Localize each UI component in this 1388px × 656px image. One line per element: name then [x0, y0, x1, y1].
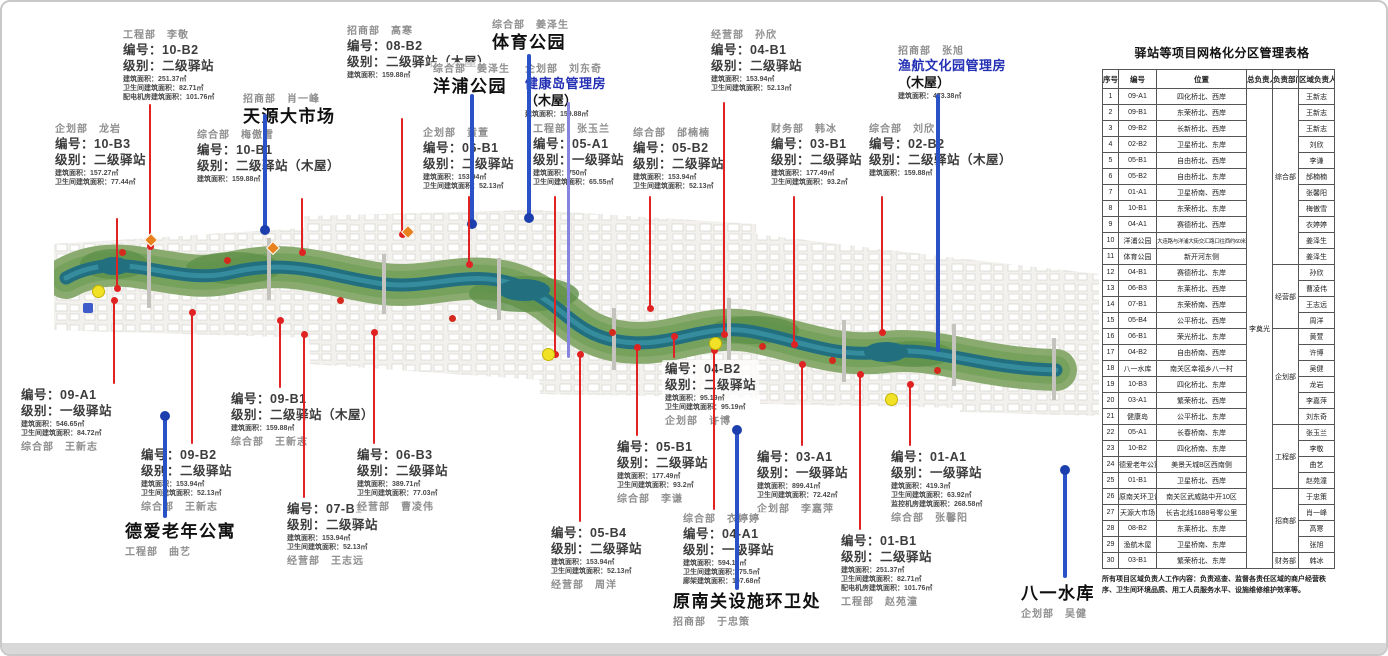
- cell-no: 16: [1103, 329, 1119, 345]
- callout-metric: 建筑面积：157.27㎡: [55, 169, 146, 178]
- callout-place-title: 洋浦公园: [433, 76, 510, 98]
- cell-location: 自由桥北、东岸: [1157, 169, 1247, 185]
- place-suffix: （木屋）: [525, 93, 606, 110]
- callout-owner: 工程部 赵苑潼: [841, 596, 932, 609]
- cell-code: 07-B1: [1119, 297, 1157, 313]
- table-row: 402-B2卫星桥北、东岸刘欣: [1103, 137, 1335, 153]
- cell-code: 八一水库: [1119, 361, 1157, 377]
- table-title: 驿站等项目网格化分区管理表格: [1102, 44, 1342, 61]
- callout-owner: 工程部 李敬: [123, 29, 214, 42]
- callout-code: 编号：06-B1: [423, 140, 514, 156]
- table-row: 1204-B1赛德桥北、东岸经营部孙欣: [1103, 265, 1335, 281]
- callout-owner: 工程部 曲艺: [125, 546, 236, 559]
- callout-metric: 配电机房建筑面积：101.76㎡: [841, 584, 932, 593]
- cell-location: 自由桥南、西岸: [1157, 345, 1247, 361]
- cell-location: 美景天城B区西南侧: [1157, 457, 1247, 473]
- cell-code: 天源大市场: [1119, 505, 1157, 521]
- cell-location: 繁荣桥北、东岸: [1157, 553, 1247, 569]
- table-row: 605-B2自由桥北、东岸邰楠楠: [1103, 169, 1335, 185]
- bottom-strip: [2, 643, 1386, 654]
- table-row: 2501-B1卫星桥北、西岸赵苑潼: [1103, 473, 1335, 489]
- cell-department: 企划部: [1273, 329, 1299, 425]
- table-footnote: 所有项目区域负责人工作内容：负责巡查、监督各责任区域的商户经营秩序、卫生间环境品…: [1102, 574, 1338, 596]
- place-name: 健康岛管理房: [525, 76, 606, 93]
- cell-no: 11: [1103, 249, 1119, 265]
- cell-code: 渔航木屋: [1119, 537, 1157, 553]
- cell-person: 刘欣: [1299, 137, 1335, 153]
- callout-metric: 配电机房建筑面积：101.76㎡: [123, 93, 214, 102]
- callout-code: 编号：10-B1: [197, 142, 340, 158]
- callout-metric: 卫生间建筑面积：52.13㎡: [711, 84, 802, 93]
- cell-no: 5: [1103, 153, 1119, 169]
- column-header: 总负责人: [1247, 70, 1273, 89]
- cell-person: 肖一峰: [1299, 505, 1335, 521]
- callout-10-B2: 工程部 李敬编号：10-B2级别：二级驿站建筑面积：251.37㎡卫生间建筑面积…: [120, 28, 217, 103]
- callout-place-title: 体育公园: [492, 32, 569, 54]
- callout-level: 级别：二级驿站: [711, 58, 802, 74]
- column-header: 序号: [1103, 70, 1119, 89]
- callout-owner: 财务部 韩冰: [771, 123, 862, 136]
- cell-location: 南关区幸福乡八一村: [1157, 361, 1247, 377]
- cell-code: 06-B1: [1119, 329, 1157, 345]
- callout-level: 级别：一级驿站: [533, 152, 624, 168]
- callout-metric: 卫生间建筑面积：77.44㎡: [55, 178, 146, 187]
- callout-metric: 监控机房建筑面积：268.58㎡: [891, 500, 982, 509]
- cell-no: 29: [1103, 537, 1119, 553]
- callout-metric: 建筑面积：594.16㎡: [683, 559, 774, 568]
- callout-metric: 卫生间建筑面积：82.71㎡: [123, 84, 214, 93]
- callout-metric: 廊架建筑面积：107.68㎡: [683, 577, 774, 586]
- table-row: 27天源大市场长吉北线1688号零公里肖一峰: [1103, 505, 1335, 521]
- cell-person: 龙岩: [1299, 377, 1335, 393]
- callout-01-B1: 编号：01-B1级别：二级驿站建筑面积：251.37㎡卫生间建筑面积：82.71…: [838, 532, 935, 610]
- table-row: 2808-B2东莱桥北、东岸高寒: [1103, 521, 1335, 537]
- callout-level: 级别：二级驿站: [771, 152, 862, 168]
- callout-code: 编号：10-B3: [55, 136, 146, 152]
- callout-metric: 建筑面积：251.37㎡: [123, 75, 214, 84]
- management-table-panel: 驿站等项目网格化分区管理表格 序号编号位置总负责人负责部门区域负责人 109-A…: [1102, 44, 1342, 596]
- callout-metric: 建筑面积：899.41㎡: [757, 482, 848, 491]
- callout-owner: 经营部 王志远: [287, 555, 378, 568]
- callout-code: 编号：03-A1: [757, 449, 848, 465]
- callout-jiankang: 企划部 刘东奇健康岛管理房（木屋）建筑面积：159.88㎡: [522, 62, 609, 120]
- cell-person: 赵苑潼: [1299, 473, 1335, 489]
- callout-metric: 卫生间建筑面积：93.2㎡: [617, 481, 708, 490]
- callout-04-A1: 综合部 衣婷婷编号：04-A1级别：一级驿站建筑面积：594.16㎡卫生间建筑面…: [680, 512, 777, 587]
- callout-place-title: 健康岛管理房（木屋）: [525, 76, 606, 110]
- callout-owner: 经营部 周洋: [551, 579, 642, 592]
- callout-metric: 卫生间建筑面积：77.03㎡: [357, 489, 448, 498]
- leader-line-blue: [1063, 470, 1067, 578]
- cell-location: 东莱桥北、东岸: [1157, 521, 1247, 537]
- callout-place-title: 德爱老年公寓: [125, 521, 236, 543]
- callout-metric: 卫生间建筑面积：52.13㎡: [141, 489, 232, 498]
- line-endpoint-dot: [1060, 465, 1070, 475]
- cell-code: 01-A1: [1119, 185, 1157, 201]
- place-name: 渔航文化园管理房: [898, 58, 1006, 75]
- cell-location: 卫星桥南、西岸: [1157, 185, 1247, 201]
- cell-code: 05-B4: [1119, 313, 1157, 329]
- callout-code: 编号：07-B1: [287, 501, 378, 517]
- cell-person: 李敬: [1299, 441, 1335, 457]
- callout-metric: 卫生间建筑面积：52.13㎡: [423, 182, 514, 191]
- callout-owner: 综合部 邰楠楠: [633, 127, 724, 140]
- callout-owner: 经营部 孙欣: [711, 29, 802, 42]
- cell-no: 21: [1103, 409, 1119, 425]
- cell-person: 张馨阳: [1299, 185, 1335, 201]
- cell-code: 04-B2: [1119, 345, 1157, 361]
- cell-location: 东荣桥北、西岸: [1157, 105, 1247, 121]
- callout-code: 编号：05-A1: [533, 136, 624, 152]
- callout-deai: 德爱老年公寓工程部 曲艺: [122, 520, 239, 560]
- callout-owner: 综合部 王新志: [21, 441, 112, 454]
- callout-05-B1: 编号：05-B1级别：二级驿站建筑面积：177.49㎡卫生间建筑面积：93.2㎡…: [614, 438, 711, 507]
- callout-09-B2: 编号：09-B2级别：二级驿站建筑面积：153.94㎡卫生间建筑面积：52.13…: [138, 446, 235, 515]
- cell-location: 卫星桥北、东岸: [1157, 137, 1247, 153]
- callout-level: 级别：二级驿站: [55, 152, 146, 168]
- cell-person: 孙欣: [1299, 265, 1335, 281]
- cell-no: 25: [1103, 473, 1119, 489]
- table-row: 505-B1自由桥北、西岸李谦: [1103, 153, 1335, 169]
- cell-code: 09-A1: [1119, 89, 1157, 105]
- column-header: 位置: [1157, 70, 1247, 89]
- cell-code: 05-B2: [1119, 169, 1157, 185]
- cell-code: 05-B1: [1119, 153, 1157, 169]
- cell-no: 24: [1103, 457, 1119, 473]
- callout-yangpu: 综合部 姜泽生洋浦公园: [430, 62, 513, 99]
- cell-person: 姜泽生: [1299, 233, 1335, 249]
- callout-metric: 卫生间建筑面积：52.13㎡: [287, 543, 378, 552]
- callout-owner: 企划部 黄萱: [423, 127, 514, 140]
- cell-person: 张旭: [1299, 537, 1335, 553]
- leader-line-blue: [527, 54, 531, 218]
- callout-08-B2: 招商部 高寒编号：08-B2级别：二级驿站（木屋）建筑面积：159.88㎡: [344, 24, 493, 81]
- cell-person: 韩冰: [1299, 553, 1335, 569]
- callout-bayi: 八一水库企划部 吴健: [1018, 582, 1098, 622]
- table-row: 2205-A1长春桥南、东岸工程部张玉兰: [1103, 425, 1335, 441]
- callout-metric: 建筑面积：153.94㎡: [423, 173, 514, 182]
- management-table: 序号编号位置总负责人负责部门区域负责人 109-A1四化桥北、西岸李奠光综合部王…: [1102, 69, 1335, 569]
- callout-owner: 综合部 衣婷婷: [683, 513, 774, 526]
- callout-code: 编号：02-B2: [869, 136, 1012, 152]
- callout-code: 编号：09-B2: [141, 447, 232, 463]
- callout-metric: 建筑面积：177.49㎡: [617, 472, 708, 481]
- callout-metric: 建筑面积：159.88㎡: [525, 110, 606, 119]
- table-row: 810-B1东荣桥北、东岸梅傲雪: [1103, 201, 1335, 217]
- cell-no: 22: [1103, 425, 1119, 441]
- table-row: 701-A1卫星桥南、西岸张馨阳: [1103, 185, 1335, 201]
- callout-code: 编号：05-B2: [633, 140, 724, 156]
- callout-metric: 卫生间建筑面积：93.2㎡: [771, 178, 862, 187]
- cell-code: 04-B1: [1119, 265, 1157, 281]
- callout-yuhang: 招商部 张旭渔航文化园管理房（木屋）建筑面积：473.38㎡: [895, 44, 1009, 102]
- cell-location: 东荣桥南、西岸: [1157, 297, 1247, 313]
- callout-code: 编号：08-B2: [347, 38, 490, 54]
- cell-person: 曹凌伟: [1299, 281, 1335, 297]
- cell-no: 2: [1103, 105, 1119, 121]
- map-graphic: [54, 202, 1099, 442]
- callout-level: 级别：二级驿站（木屋）: [347, 54, 490, 70]
- callout-metric: 建筑面积：153.94㎡: [711, 75, 802, 84]
- column-header: 负责部门: [1273, 70, 1299, 89]
- callout-metric: 建筑面积：159.88㎡: [197, 175, 340, 184]
- cell-person: 王新志: [1299, 121, 1335, 137]
- cell-person: 曲艺: [1299, 457, 1335, 473]
- cell-no: 18: [1103, 361, 1119, 377]
- cell-location: 赛德桥北、西岸: [1157, 217, 1247, 233]
- table-row: 109-A1四化桥北、西岸李奠光综合部王新志: [1103, 89, 1335, 105]
- callout-01-A1: 编号：01-A1级别：一级驿站建筑面积：419.3㎡卫生间建筑面积：63.92㎡…: [888, 448, 985, 526]
- cell-no: 9: [1103, 217, 1119, 233]
- table-row: 1910-B3四化桥北、东岸龙岩: [1103, 377, 1335, 393]
- cell-location: 公平桥北、西岸: [1157, 313, 1247, 329]
- cell-location: 长吉北线1688号零公里: [1157, 505, 1247, 521]
- cell-person: 王新志: [1299, 89, 1335, 105]
- cell-no: 27: [1103, 505, 1119, 521]
- callout-metric: 建筑面积：153.94㎡: [287, 534, 378, 543]
- callout-10-B1: 综合部 梅傲雪编号：10-B1级别：二级驿站（木屋）建筑面积：159.88㎡: [194, 128, 343, 185]
- callout-owner: 企划部 龙岩: [55, 123, 146, 136]
- callout-owner: 招商部 张旭: [898, 45, 1006, 58]
- callout-level: 级别：二级驿站: [633, 156, 724, 172]
- callout-place-title: 渔航文化园管理房（木屋）: [898, 58, 1006, 92]
- cell-code: 10-B1: [1119, 201, 1157, 217]
- cell-location: 赛德桥北、东岸: [1157, 265, 1247, 281]
- table-row: 3003-B1繁荣桥北、东岸财务部韩冰: [1103, 553, 1335, 569]
- callout-owner: 经营部 曹凌伟: [357, 501, 448, 514]
- callout-metric: 建筑面积：159.88㎡: [347, 71, 490, 80]
- callout-owner: 综合部 梅傲雪: [197, 129, 340, 142]
- cell-person: 刘东奇: [1299, 409, 1335, 425]
- callout-metric: 卫生间建筑面积：75.5㎡: [683, 568, 774, 577]
- cell-location: 繁荣桥北、西岸: [1157, 393, 1247, 409]
- cell-location: 荣光桥北、东岸: [1157, 329, 1247, 345]
- cell-person: 吴健: [1299, 361, 1335, 377]
- table-row: 26原南关环卫设施处南关区武威路中开10区招商部于忠策: [1103, 489, 1335, 505]
- callout-05-B4: 编号：05-B4级别：二级驿站建筑面积：153.94㎡卫生间建筑面积：52.13…: [548, 524, 645, 593]
- callout-06-B1: 企划部 黄萱编号：06-B1级别：二级驿站建筑面积：153.94㎡卫生间建筑面积…: [420, 126, 517, 192]
- callout-place-title: 八一水库: [1021, 583, 1095, 605]
- callout-metric: 建筑面积：251.37㎡: [841, 566, 932, 575]
- callout-metric: 建筑面积：419.3㎡: [891, 482, 982, 491]
- callout-level: 级别：二级驿站（木屋）: [197, 158, 340, 174]
- leader-line-blue: [735, 430, 739, 590]
- table-row: 309-B2长新桥北、西岸王新志: [1103, 121, 1335, 137]
- table-row: 11体育公园新开河东侧姜泽生: [1103, 249, 1335, 265]
- callout-level: 级别：二级驿站: [423, 156, 514, 172]
- cell-department: 综合部: [1273, 89, 1299, 265]
- callout-owner: 综合部 姜泽生: [433, 63, 510, 76]
- cell-person: 于忠策: [1299, 489, 1335, 505]
- callout-metric: 建筑面积：159.88㎡: [869, 169, 1012, 178]
- callout-level: 级别：一级驿站: [683, 542, 774, 558]
- callout-owner: 企划部 李嘉萍: [757, 503, 848, 516]
- cell-location: 长新桥北、西岸: [1157, 121, 1247, 137]
- callout-code: 编号：05-B4: [551, 525, 642, 541]
- callout-level: 级别：一级驿站: [891, 465, 982, 481]
- callout-owner: 综合部 姜泽生: [492, 19, 569, 32]
- callout-03-A1: 编号：03-A1级别：一级驿站建筑面积：899.41㎡卫生间建筑面积：72.42…: [754, 448, 851, 517]
- cell-no: 14: [1103, 297, 1119, 313]
- table-row: 29渔航木屋卫星桥南、东岸张旭: [1103, 537, 1335, 553]
- cell-code: 05-A1: [1119, 425, 1157, 441]
- callout-05-A1: 工程部 张玉兰编号：05-A1级别：一级驿站建筑面积：750㎡卫生间建筑面积：6…: [530, 122, 627, 188]
- table-row: 10洋浦公园大连路与洋浦大街交汇路口往西约60米姜泽生: [1103, 233, 1335, 249]
- cell-code: 体育公园: [1119, 249, 1157, 265]
- callout-level: 级别：二级驿站（木屋）: [869, 152, 1012, 168]
- cell-code: 08-B2: [1119, 521, 1157, 537]
- callout-metric: 建筑面积：750㎡: [533, 169, 624, 178]
- callout-owner: 企划部 刘东奇: [525, 63, 606, 76]
- table-row: 1704-B2自由桥南、西岸许博: [1103, 345, 1335, 361]
- callout-code: 编号：01-A1: [891, 449, 982, 465]
- cell-person: 邰楠楠: [1299, 169, 1335, 185]
- callout-place-title: 天源大市场: [243, 106, 336, 128]
- callout-tiyu: 综合部 姜泽生体育公园: [489, 18, 572, 55]
- column-header: 区域负责人: [1299, 70, 1335, 89]
- callout-metric: 卫生间建筑面积：72.42㎡: [757, 491, 848, 500]
- cell-code: 09-B1: [1119, 105, 1157, 121]
- callout-metric: 卫生间建筑面积：52.13㎡: [551, 567, 642, 576]
- cell-location: 大连路与洋浦大街交汇路口往西约60米: [1157, 233, 1247, 249]
- callout-06-B3: 编号：06-B3级别：二级驿站建筑面积：389.71㎡卫生间建筑面积：77.03…: [354, 446, 451, 515]
- cell-no: 20: [1103, 393, 1119, 409]
- callout-metric: 建筑面积：153.94㎡: [551, 558, 642, 567]
- callout-metric: 建筑面积：177.49㎡: [771, 169, 862, 178]
- callout-owner: 企划部 吴健: [1021, 608, 1095, 621]
- cell-person: 衣婷婷: [1299, 217, 1335, 233]
- cell-person: 王志远: [1299, 297, 1335, 313]
- callout-tianyuan: 招商部 肖一峰天源大市场: [240, 92, 339, 129]
- callout-metric: 建筑面积：153.94㎡: [633, 173, 724, 182]
- cell-no: 26: [1103, 489, 1119, 505]
- cell-department: 工程部: [1273, 425, 1299, 489]
- callout-level: 级别：二级驿站: [141, 463, 232, 479]
- callout-owner: 招商部 于忠策: [673, 616, 821, 629]
- callout-code: 编号：04-B1: [711, 42, 802, 58]
- cell-no: 7: [1103, 185, 1119, 201]
- callout-02-B2: 综合部 刘欣编号：02-B2级别：二级驿站（木屋）建筑面积：159.88㎡: [866, 122, 1015, 179]
- callout-level: 级别：二级驿站: [841, 549, 932, 565]
- cell-location: 四化桥北、西岸: [1157, 89, 1247, 105]
- cell-person: 姜泽生: [1299, 249, 1335, 265]
- callout-metric: 建筑面积：153.94㎡: [141, 480, 232, 489]
- callout-metric: 建筑面积：389.71㎡: [357, 480, 448, 489]
- cell-no: 8: [1103, 201, 1119, 217]
- callout-07-B1: 编号：07-B1级别：二级驿站建筑面积：153.94㎡卫生间建筑面积：52.13…: [284, 500, 381, 569]
- table-row: 1407-B1东荣桥南、西岸王志远: [1103, 297, 1335, 313]
- cell-no: 30: [1103, 553, 1119, 569]
- cell-code: 03-A1: [1119, 393, 1157, 409]
- cell-location: 四化桥南、东岸: [1157, 441, 1247, 457]
- cell-department: 财务部: [1273, 553, 1299, 569]
- cell-no: 4: [1103, 137, 1119, 153]
- table-row: 21健康岛公平桥北、东岸刘东奇: [1103, 409, 1335, 425]
- callout-owner: 综合部 李谦: [617, 493, 708, 506]
- callout-owner: 综合部 刘欣: [869, 123, 1012, 136]
- cell-person: 高寒: [1299, 521, 1335, 537]
- cell-no: 13: [1103, 281, 1119, 297]
- table-row: 1606-B1荣光桥北、东岸企划部黄萱: [1103, 329, 1335, 345]
- cell-person: 李谦: [1299, 153, 1335, 169]
- cell-no: 17: [1103, 345, 1119, 361]
- callout-level: 级别：一级驿站: [757, 465, 848, 481]
- cell-person: 张玉兰: [1299, 425, 1335, 441]
- cell-location: 东莱桥北、西岸: [1157, 281, 1247, 297]
- cell-code: 09-B2: [1119, 121, 1157, 137]
- cell-location: 长春桥南、东岸: [1157, 425, 1247, 441]
- cell-person: 黄萱: [1299, 329, 1335, 345]
- callout-03-B1: 财务部 韩冰编号：03-B1级别：二级驿站建筑面积：177.49㎡卫生间建筑面积…: [768, 122, 865, 188]
- table-row: 1505-B4公平桥北、西岸周洋: [1103, 313, 1335, 329]
- cell-person: 李嘉萍: [1299, 393, 1335, 409]
- callout-owner: 综合部 王新志: [141, 501, 232, 514]
- callout-code: 编号：03-B1: [771, 136, 862, 152]
- callout-code: 编号：04-A1: [683, 526, 774, 542]
- table-row: 1306-B3东莱桥北、西岸曹凌伟: [1103, 281, 1335, 297]
- callout-level: 级别：二级驿站: [617, 455, 708, 471]
- callout-owner: 工程部 张玉兰: [533, 123, 624, 136]
- cell-code: 10-B2: [1119, 441, 1157, 457]
- cell-location: 东荣桥北、东岸: [1157, 201, 1247, 217]
- cell-location: 四化桥北、东岸: [1157, 377, 1247, 393]
- cell-code: 03-B1: [1119, 553, 1157, 569]
- callout-place-title: 原南关设施环卫处: [673, 591, 821, 613]
- cell-no: 15: [1103, 313, 1119, 329]
- table-row: 904-A1赛德桥北、西岸衣婷婷: [1103, 217, 1335, 233]
- cell-no: 23: [1103, 441, 1119, 457]
- column-header: 编号: [1119, 70, 1157, 89]
- cell-department: 经营部: [1273, 265, 1299, 329]
- cell-location: 卫星桥南、东岸: [1157, 537, 1247, 553]
- callout-level: 级别：二级驿站: [123, 58, 214, 74]
- cell-no: 10: [1103, 233, 1119, 249]
- callout-code: 编号：06-B3: [357, 447, 448, 463]
- table-row: 24德爱老年公寓美景天城B区西南侧曲艺: [1103, 457, 1335, 473]
- callout-owner: 招商部 高寒: [347, 25, 490, 38]
- callout-owner: 招商部 肖一峰: [243, 93, 336, 106]
- cell-person: 许博: [1299, 345, 1335, 361]
- callout-metric: 卫生间建筑面积：82.71㎡: [841, 575, 932, 584]
- cell-person: 周洋: [1299, 313, 1335, 329]
- cell-code: 德爱老年公寓: [1119, 457, 1157, 473]
- callout-10-B3: 企划部 龙岩编号：10-B3级别：二级驿站建筑面积：157.27㎡卫生间建筑面积…: [52, 122, 149, 188]
- cell-no: 12: [1103, 265, 1119, 281]
- cell-no: 3: [1103, 121, 1119, 137]
- cell-code: 10-B3: [1119, 377, 1157, 393]
- cell-code: 06-B3: [1119, 281, 1157, 297]
- cell-code: 健康岛: [1119, 409, 1157, 425]
- cell-code: 02-B2: [1119, 137, 1157, 153]
- cell-person: 梅傲雪: [1299, 201, 1335, 217]
- page: 工程部 李敬编号：10-B2级别：二级驿站建筑面积：251.37㎡卫生间建筑面积…: [0, 0, 1388, 656]
- callout-metric: 卫生间建筑面积：65.55㎡: [533, 178, 624, 187]
- table-row: 2310-B2四化桥南、东岸李敬: [1103, 441, 1335, 457]
- callout-metric: 卫生间建筑面积：63.92㎡: [891, 491, 982, 500]
- cell-code: 洋浦公园: [1119, 233, 1157, 249]
- cell-department: 招商部: [1273, 489, 1299, 553]
- callout-yuannanguan: 原南关设施环卫处招商部 于忠策: [670, 590, 824, 630]
- table-row: 18八一水库南关区幸福乡八一村吴健: [1103, 361, 1335, 377]
- callout-04-B1: 经营部 孙欣编号：04-B1级别：二级驿站建筑面积：153.94㎡卫生间建筑面积…: [708, 28, 805, 94]
- cell-location: 新开河东侧: [1157, 249, 1247, 265]
- callout-code: 编号：10-B2: [123, 42, 214, 58]
- callout-metric: 卫生间建筑面积：52.13㎡: [633, 182, 724, 191]
- cell-no: 19: [1103, 377, 1119, 393]
- cell-code: 04-A1: [1119, 217, 1157, 233]
- callout-05-B2: 综合部 邰楠楠编号：05-B2级别：二级驿站建筑面积：153.94㎡卫生间建筑面…: [630, 126, 727, 192]
- table-row: 209-B1东荣桥北、西岸王新志: [1103, 105, 1335, 121]
